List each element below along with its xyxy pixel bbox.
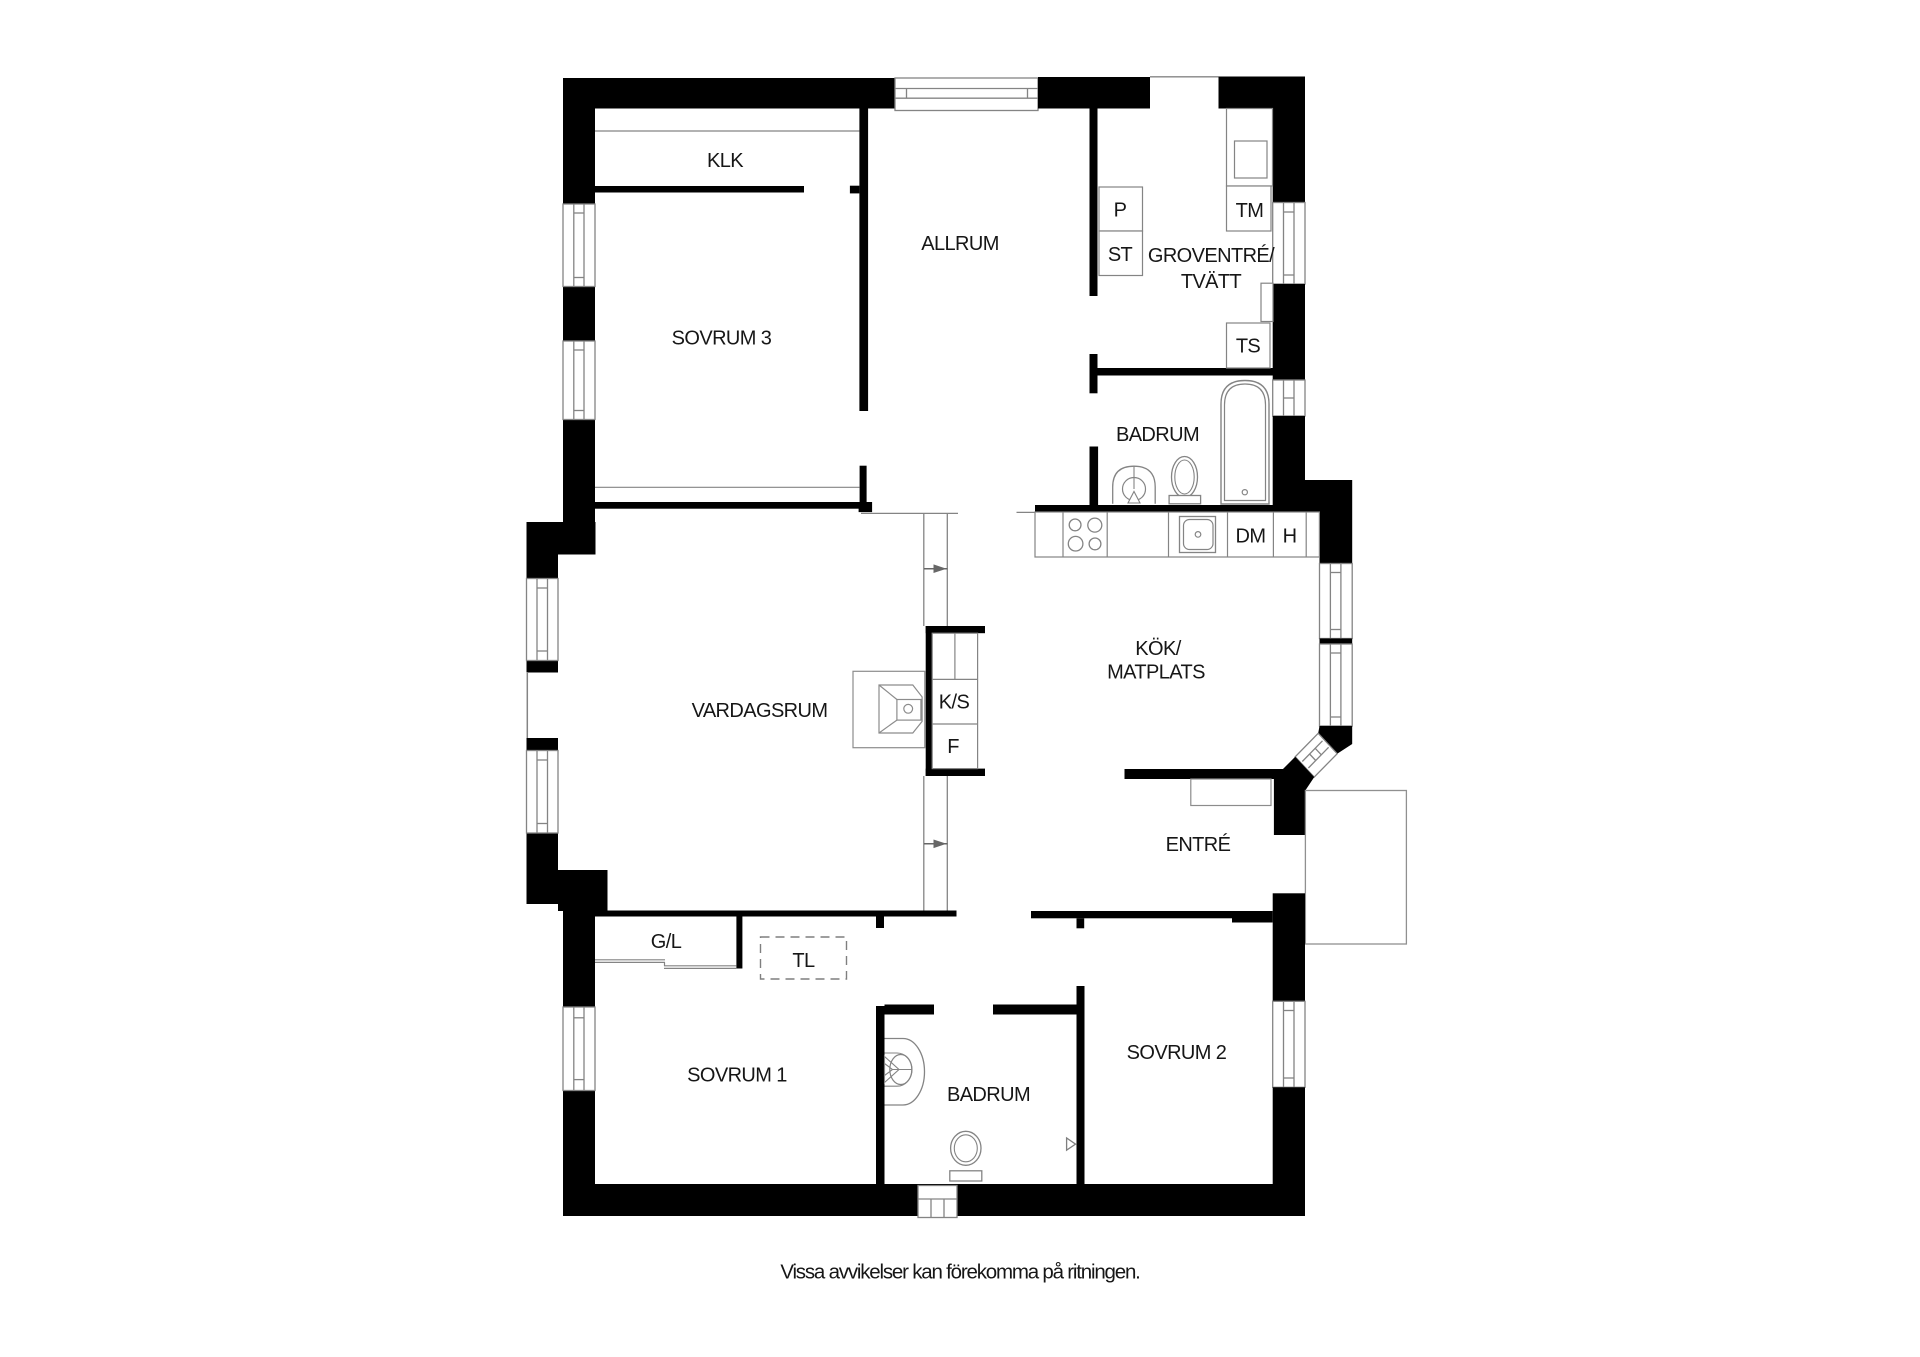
svg-text:K/S: K/S: [939, 692, 970, 714]
svg-text:P: P: [1114, 200, 1127, 222]
svg-text:TL: TL: [792, 950, 815, 972]
svg-text:H: H: [1283, 526, 1297, 548]
svg-text:MATPLATS: MATPLATS: [1107, 662, 1205, 684]
svg-text:ENTRÉ: ENTRÉ: [1166, 833, 1231, 856]
svg-text:BADRUM: BADRUM: [1116, 424, 1199, 446]
svg-text:F: F: [947, 736, 959, 758]
svg-text:SOVRUM 2: SOVRUM 2: [1127, 1042, 1227, 1064]
svg-text:G/L: G/L: [651, 931, 682, 953]
svg-text:Vissa avvikelser kan förekomma: Vissa avvikelser kan förekomma på ritnin…: [780, 1261, 1139, 1284]
svg-text:TS: TS: [1236, 336, 1261, 358]
svg-text:SOVRUM 1: SOVRUM 1: [687, 1065, 787, 1087]
svg-text:ALLRUM: ALLRUM: [921, 233, 999, 255]
svg-text:TVÄTT: TVÄTT: [1181, 271, 1242, 293]
svg-text:SOVRUM 3: SOVRUM 3: [672, 328, 772, 350]
svg-text:ST: ST: [1108, 244, 1133, 266]
svg-text:KLK: KLK: [707, 150, 744, 172]
svg-text:DM: DM: [1236, 526, 1266, 548]
svg-text:BADRUM: BADRUM: [947, 1084, 1030, 1106]
svg-text:TM: TM: [1236, 200, 1264, 222]
svg-text:GROVENTRÉ/: GROVENTRÉ/: [1148, 244, 1275, 267]
svg-text:VARDAGSRUM: VARDAGSRUM: [692, 700, 828, 722]
svg-text:KÖK/: KÖK/: [1135, 638, 1181, 660]
